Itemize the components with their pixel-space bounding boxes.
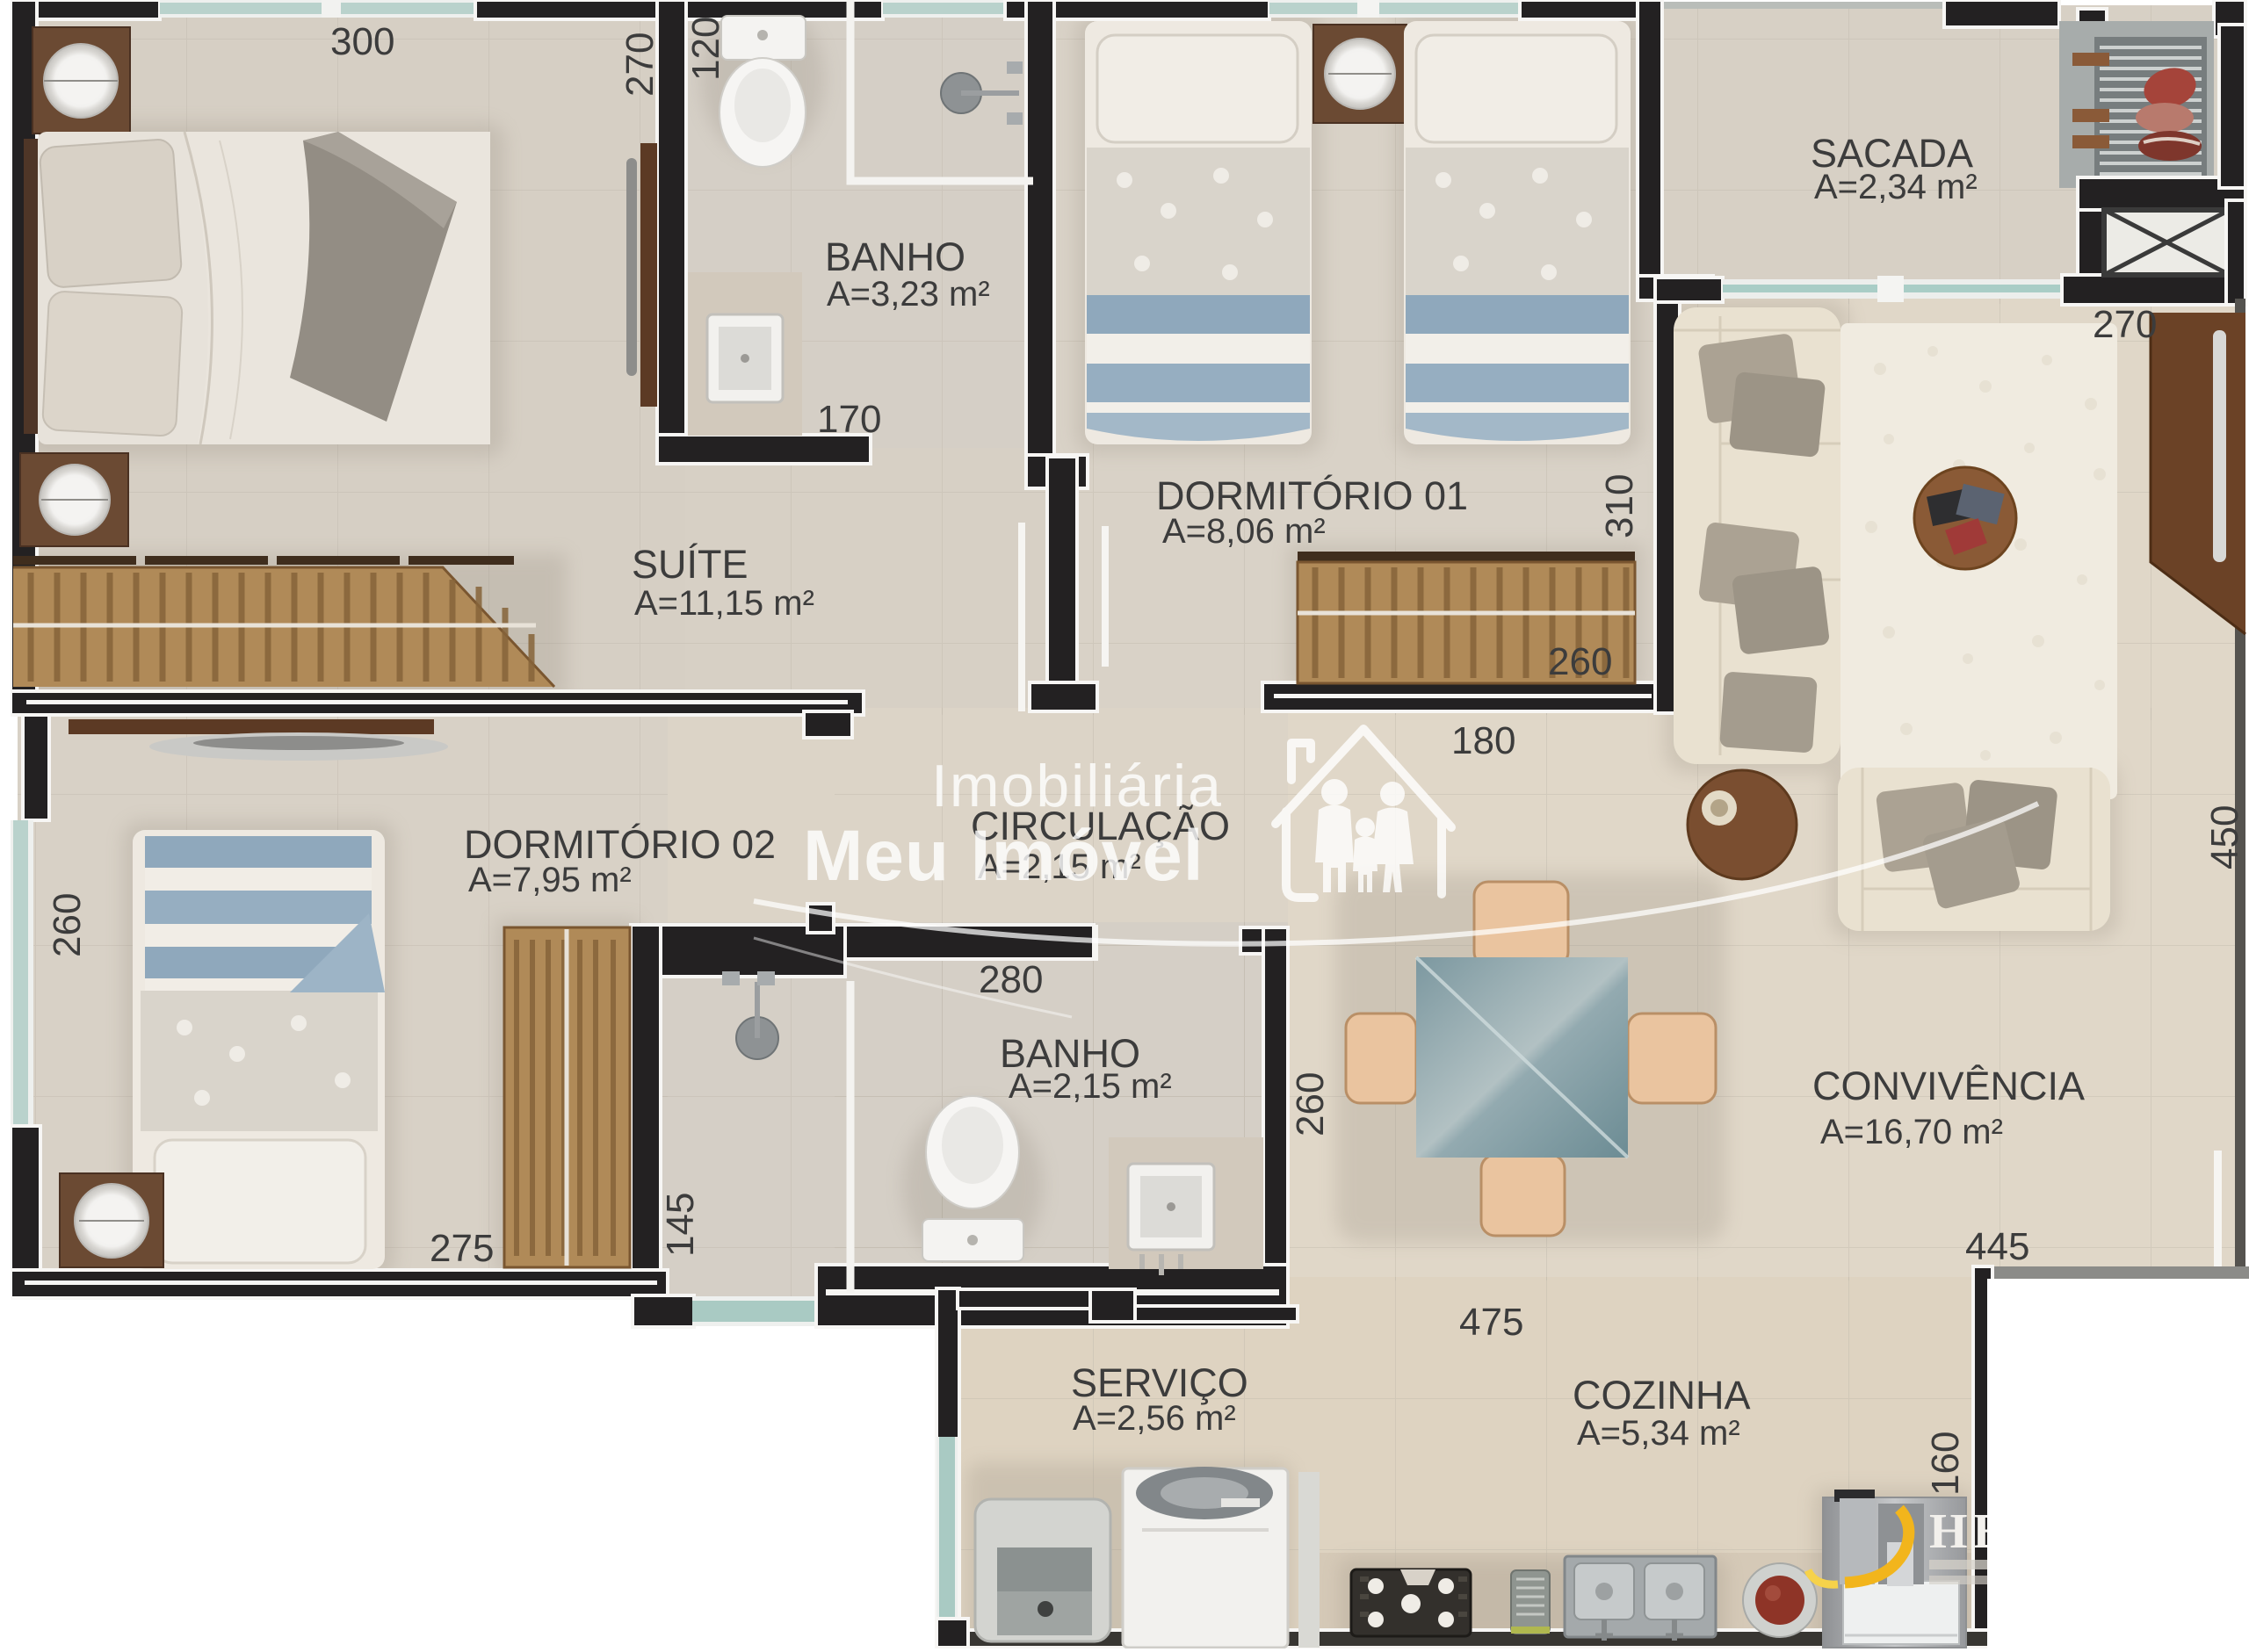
svg-text:Imobiliária: Imobiliária [931,753,1223,819]
svg-text:310: 310 [1598,474,1641,538]
svg-text:270: 270 [2093,303,2157,346]
svg-text:A=7,95 m²: A=7,95 m² [468,861,632,899]
svg-text:SUÍTE: SUÍTE [632,542,748,587]
svg-text:260: 260 [1289,1072,1332,1136]
svg-text:475: 475 [1459,1301,1523,1344]
svg-text:260: 260 [1548,640,1612,683]
svg-text:Meu Imóvel: Meu Imóvel [803,816,1204,896]
svg-text:A=3,23 m²: A=3,23 m² [827,275,990,314]
svg-text:A=2,34 m²: A=2,34 m² [1814,168,1978,206]
svg-text:A=2,56 m²: A=2,56 m² [1073,1399,1236,1438]
svg-text:CONVIVÊNCIA: CONVIVÊNCIA [1812,1064,2085,1108]
svg-text:445: 445 [1965,1225,2029,1268]
svg-text:A=8,06 m²: A=8,06 m² [1162,512,1326,551]
svg-text:160: 160 [1924,1432,1967,1496]
svg-text:260: 260 [46,893,89,957]
svg-text:A=11,15 m²: A=11,15 m² [634,584,814,623]
svg-text:300: 300 [330,20,394,63]
svg-text:120: 120 [684,17,727,81]
svg-text:280: 280 [979,958,1043,1001]
svg-text:270: 270 [618,32,662,97]
svg-text:275: 275 [430,1227,494,1270]
svg-text:145: 145 [659,1193,702,1257]
svg-text:COZINHA: COZINHA [1573,1373,1751,1418]
svg-text:A=16,70 m²: A=16,70 m² [1820,1113,2003,1151]
svg-text:A=2,15 m²: A=2,15 m² [1009,1067,1172,1106]
svg-text:A=5,34 m²: A=5,34 m² [1577,1414,1740,1453]
svg-text:170: 170 [817,398,881,441]
svg-text:450: 450 [2203,805,2246,869]
svg-text:BANHO: BANHO [825,234,965,279]
svg-text:180: 180 [1451,719,1515,762]
